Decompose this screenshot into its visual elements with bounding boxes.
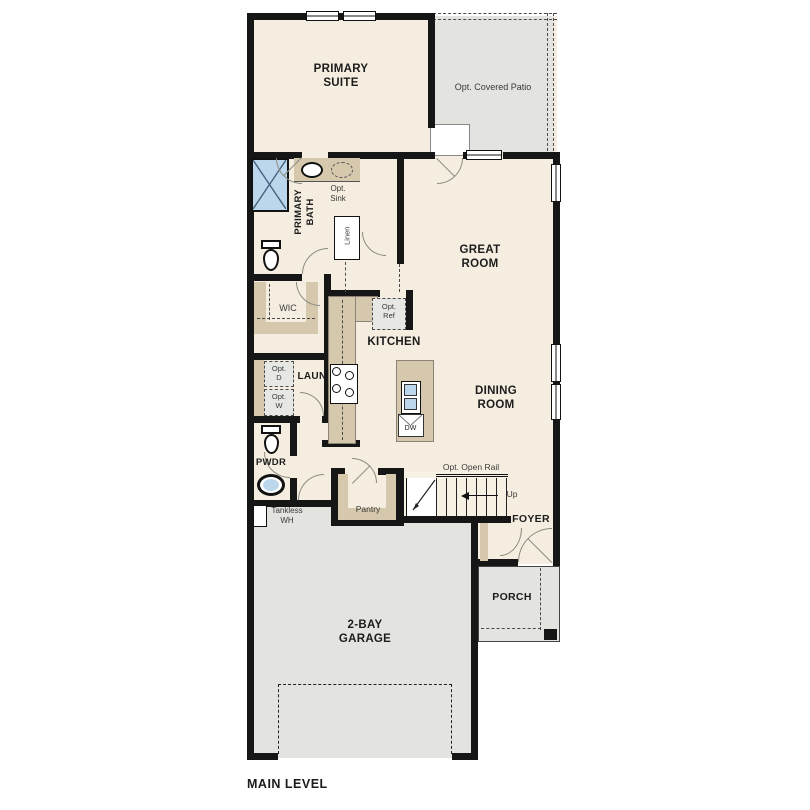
wall-segment — [247, 416, 300, 423]
opt-sink — [331, 162, 353, 178]
stair-landing — [406, 478, 436, 516]
label-kitchen: KITCHEN — [358, 335, 430, 349]
wall-segment — [428, 13, 435, 128]
pedestal-sink-bowl — [263, 479, 279, 491]
wall-segment — [471, 559, 518, 566]
label-porch: PORCH — [484, 591, 540, 604]
cased-opening — [399, 264, 400, 292]
wall-segment — [290, 423, 297, 456]
wall-segment — [503, 152, 560, 159]
label-opt-dryer: Opt. D — [264, 364, 294, 383]
toilet-tank — [261, 240, 281, 249]
up-arrow-head — [461, 492, 469, 500]
stair-riser — [476, 478, 477, 516]
wall-segment — [385, 152, 432, 159]
label-primary-bath: PRIMARY BATH — [293, 172, 317, 252]
stair-riser — [496, 478, 497, 516]
stair-riser — [486, 478, 487, 516]
wall-segment — [401, 516, 511, 523]
closet-rod — [269, 284, 270, 320]
window — [551, 344, 561, 382]
label-foyer: FOYER — [506, 513, 556, 526]
island-sink-bowl — [404, 384, 417, 396]
label-opt-washer: Opt. W — [264, 392, 294, 411]
label-tankless-wh: Tankless WH — [262, 506, 312, 526]
wall-segment — [247, 13, 435, 20]
label-dining-room: DINING ROOM — [452, 384, 540, 413]
burner — [332, 384, 341, 393]
dishwasher: DW — [398, 414, 424, 437]
label-garage: 2-BAY GARAGE — [318, 618, 412, 647]
wall-segment — [247, 353, 331, 360]
wall-segment — [406, 290, 413, 330]
toilet-tank — [261, 425, 281, 434]
wall-segment — [247, 13, 254, 760]
dishwasher-label: DW — [399, 425, 422, 434]
closet-rod — [257, 318, 315, 319]
porch-column — [544, 629, 557, 640]
dashed-line — [345, 262, 346, 292]
burner — [345, 388, 354, 397]
porch-dashed-line — [481, 628, 541, 629]
label-opt-open-rail: Opt. Open Rail — [430, 462, 512, 473]
stair-open-rail — [436, 474, 508, 477]
label-great-room: GREAT ROOM — [436, 243, 524, 272]
floor-plan: DW PRIMARY SUITE Opt — [0, 0, 810, 810]
up-arrow — [468, 495, 498, 496]
label-wic: WIC — [267, 303, 309, 314]
window — [306, 11, 339, 21]
foyer-closet-shelf — [480, 523, 488, 561]
patio-dashed-edge — [433, 19, 557, 20]
label-primary-suite: PRIMARY SUITE — [295, 62, 387, 91]
label-pantry: Pantry — [342, 504, 394, 515]
label-opt-covered-patio: Opt. Covered Patio — [435, 82, 551, 93]
island-sink-bowl — [404, 398, 417, 410]
burner — [332, 367, 341, 376]
wall-segment — [331, 519, 401, 526]
wall-segment — [247, 274, 302, 281]
window — [551, 164, 561, 202]
wall-segment — [331, 468, 338, 526]
label-up: Up — [501, 489, 523, 500]
label-main-level: MAIN LEVEL — [247, 777, 397, 793]
wall-segment — [471, 516, 478, 760]
porch-dashed-line — [540, 568, 541, 630]
label-opt-sink: Opt. Sink — [321, 184, 355, 204]
stair-riser — [456, 478, 457, 516]
patio-dashed-edge — [553, 13, 554, 156]
label-laundry: LAUN — [293, 371, 331, 384]
patio-dashed-edge — [433, 13, 557, 14]
burner — [345, 371, 354, 380]
window — [343, 11, 376, 21]
window — [551, 384, 561, 420]
window — [466, 150, 502, 160]
label-linen: Linen — [342, 211, 351, 261]
garage-door-dashed — [278, 684, 452, 754]
label-opt-ref: Opt. Ref — [372, 302, 406, 321]
label-powder: PWDR — [249, 457, 293, 469]
wall-segment — [247, 753, 278, 760]
stair-riser — [446, 478, 447, 516]
wall-segment — [397, 152, 404, 264]
laundry-counter — [254, 360, 264, 416]
